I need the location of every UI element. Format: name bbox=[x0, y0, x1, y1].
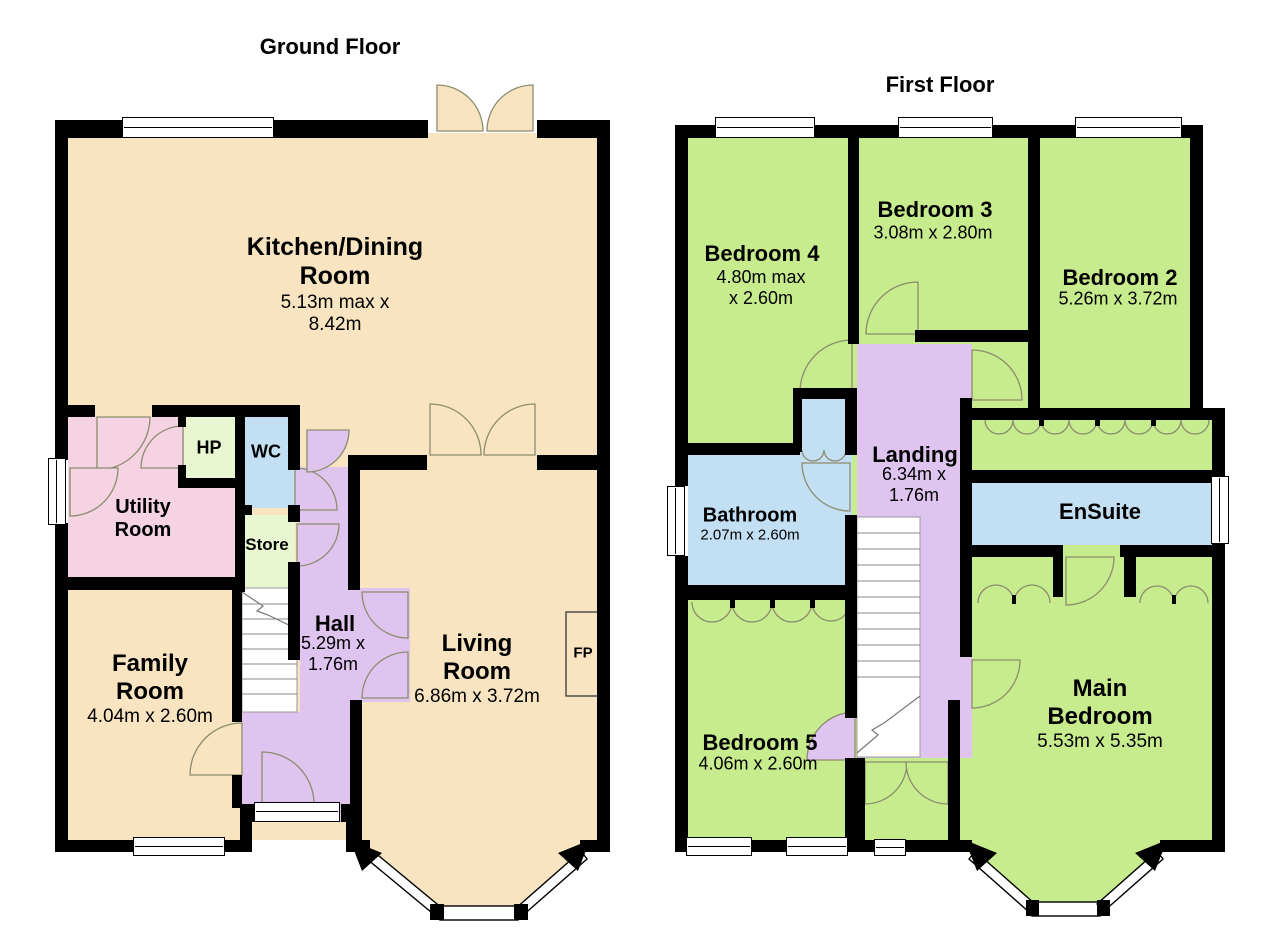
wall bbox=[232, 590, 242, 722]
floorplan-canvas: Ground Floor First Floor Kitchen/Dining … bbox=[0, 0, 1280, 930]
living-name: Living Room bbox=[430, 630, 525, 686]
window-ensuite bbox=[1211, 476, 1229, 544]
cupboard-bifold-doors bbox=[802, 450, 846, 461]
window-bathroom bbox=[667, 486, 685, 556]
french-door-right-leaf bbox=[487, 85, 533, 131]
wall bbox=[352, 840, 370, 852]
wall bbox=[675, 585, 857, 600]
ground-floor-title: Ground Floor bbox=[260, 34, 401, 60]
living-french-right-leaf bbox=[484, 404, 535, 455]
bedroom2-name: Bedroom 2 bbox=[1063, 265, 1178, 291]
bedroom3-door bbox=[866, 282, 918, 334]
bedroom4-door bbox=[800, 340, 852, 392]
window-bedroom5-right bbox=[786, 837, 848, 856]
wall bbox=[1190, 125, 1203, 420]
ensuite-name: EnSuite bbox=[1059, 499, 1141, 525]
dressing-door-right bbox=[906, 762, 948, 804]
dressing-door-left bbox=[865, 762, 907, 804]
wall bbox=[1028, 138, 1040, 410]
hall-dims: 5.29m x 1.76m bbox=[297, 633, 369, 675]
wall bbox=[597, 120, 610, 852]
wall bbox=[288, 510, 300, 522]
wall bbox=[1212, 544, 1225, 852]
bedroom5-dims: 4.06m x 2.60m bbox=[698, 754, 817, 775]
wall bbox=[152, 405, 300, 417]
family-dims: 4.04m x 2.60m bbox=[87, 706, 213, 728]
landing-dims: 6.34m x 1.76m bbox=[878, 464, 950, 506]
wall bbox=[845, 388, 857, 455]
wall bbox=[178, 478, 240, 488]
wc-door bbox=[295, 468, 337, 510]
wall bbox=[960, 398, 972, 657]
wall bbox=[675, 125, 688, 486]
bedroom4-name: Bedroom 4 bbox=[705, 241, 820, 267]
wall bbox=[675, 556, 688, 852]
window-bedroom3 bbox=[898, 117, 993, 138]
bedroom4-dims: 4.80m max x 2.60m bbox=[711, 267, 811, 309]
family-room-door bbox=[190, 723, 242, 775]
wall bbox=[752, 840, 786, 852]
front-door-opening bbox=[254, 802, 340, 822]
bathroom-dims: 2.07m x 2.60m bbox=[700, 526, 799, 543]
wall bbox=[55, 405, 95, 417]
ensuite-door bbox=[1066, 557, 1114, 605]
wall bbox=[288, 417, 300, 470]
wall bbox=[848, 138, 859, 344]
kitchen-dims: 5.13m max x 8.42m bbox=[279, 292, 391, 336]
window-bedroom2 bbox=[1075, 117, 1182, 138]
wall bbox=[55, 523, 68, 852]
main-bedroom-dims: 5.53m x 5.35m bbox=[1037, 731, 1163, 753]
wall bbox=[815, 125, 898, 138]
wall bbox=[55, 577, 242, 590]
wall bbox=[688, 443, 800, 455]
bathroom-name: Bathroom bbox=[703, 504, 797, 527]
wall bbox=[1124, 557, 1136, 597]
wall bbox=[848, 840, 876, 852]
wc-name: WC bbox=[251, 442, 281, 463]
bedroom5-name: Bedroom 5 bbox=[703, 730, 818, 756]
window-kitchen bbox=[122, 117, 274, 138]
wall bbox=[350, 700, 362, 840]
wall bbox=[240, 804, 255, 822]
wall bbox=[272, 120, 428, 138]
window-utility bbox=[48, 458, 66, 525]
french-door-left-leaf bbox=[437, 85, 483, 131]
wall bbox=[960, 545, 1063, 557]
first-floor-title: First Floor bbox=[886, 72, 995, 98]
wall bbox=[966, 470, 1225, 483]
window-bedroom5-left bbox=[686, 837, 752, 856]
store-door bbox=[297, 524, 339, 566]
wall bbox=[993, 125, 1075, 138]
main-bedroom-door bbox=[972, 660, 1020, 708]
window-family-room bbox=[133, 837, 225, 856]
wall bbox=[235, 505, 252, 515]
wall bbox=[1160, 840, 1225, 852]
kitchen-name: Kitchen/Dining Room bbox=[235, 233, 435, 291]
hp-name: HP bbox=[196, 438, 221, 459]
wall bbox=[972, 408, 1225, 420]
store-name: Store bbox=[245, 535, 288, 555]
bedroom2-door bbox=[972, 350, 1022, 400]
bedroom2-dims: 5.26m x 3.72m bbox=[1058, 289, 1177, 310]
wall bbox=[1053, 557, 1063, 597]
family-name: Family Room bbox=[100, 650, 200, 706]
wall bbox=[906, 840, 972, 852]
living-french-left-leaf bbox=[430, 404, 481, 455]
wall bbox=[948, 700, 960, 840]
floorplan-graphics bbox=[0, 0, 1280, 930]
bathroom-door bbox=[802, 463, 850, 511]
wall bbox=[915, 330, 1040, 342]
kitchen-hall-door bbox=[307, 430, 349, 472]
wall bbox=[1120, 545, 1212, 557]
wall bbox=[348, 455, 427, 470]
staircase-first bbox=[857, 517, 920, 757]
window-bedroom4 bbox=[715, 117, 815, 138]
utility-name: Utility Room bbox=[103, 496, 183, 542]
fireplace-label: FP bbox=[573, 644, 592, 661]
living-dims: 6.86m x 3.72m bbox=[414, 686, 540, 708]
wall bbox=[845, 515, 857, 718]
window-dressing bbox=[874, 839, 906, 856]
wall bbox=[178, 417, 186, 427]
wall bbox=[845, 758, 865, 840]
bay-window-living-room bbox=[350, 840, 590, 920]
hall-living-door-upper bbox=[362, 592, 408, 638]
wall bbox=[537, 455, 597, 470]
bedroom3-name: Bedroom 3 bbox=[878, 197, 993, 223]
bedroom3-dims: 3.08m x 2.80m bbox=[873, 223, 992, 244]
wall bbox=[232, 775, 242, 808]
front-door bbox=[262, 752, 314, 804]
wall bbox=[348, 470, 360, 590]
wall bbox=[580, 840, 610, 852]
bay-window-main-bedroom bbox=[960, 840, 1172, 916]
main-bedroom-name: Main Bedroom bbox=[1038, 675, 1163, 731]
